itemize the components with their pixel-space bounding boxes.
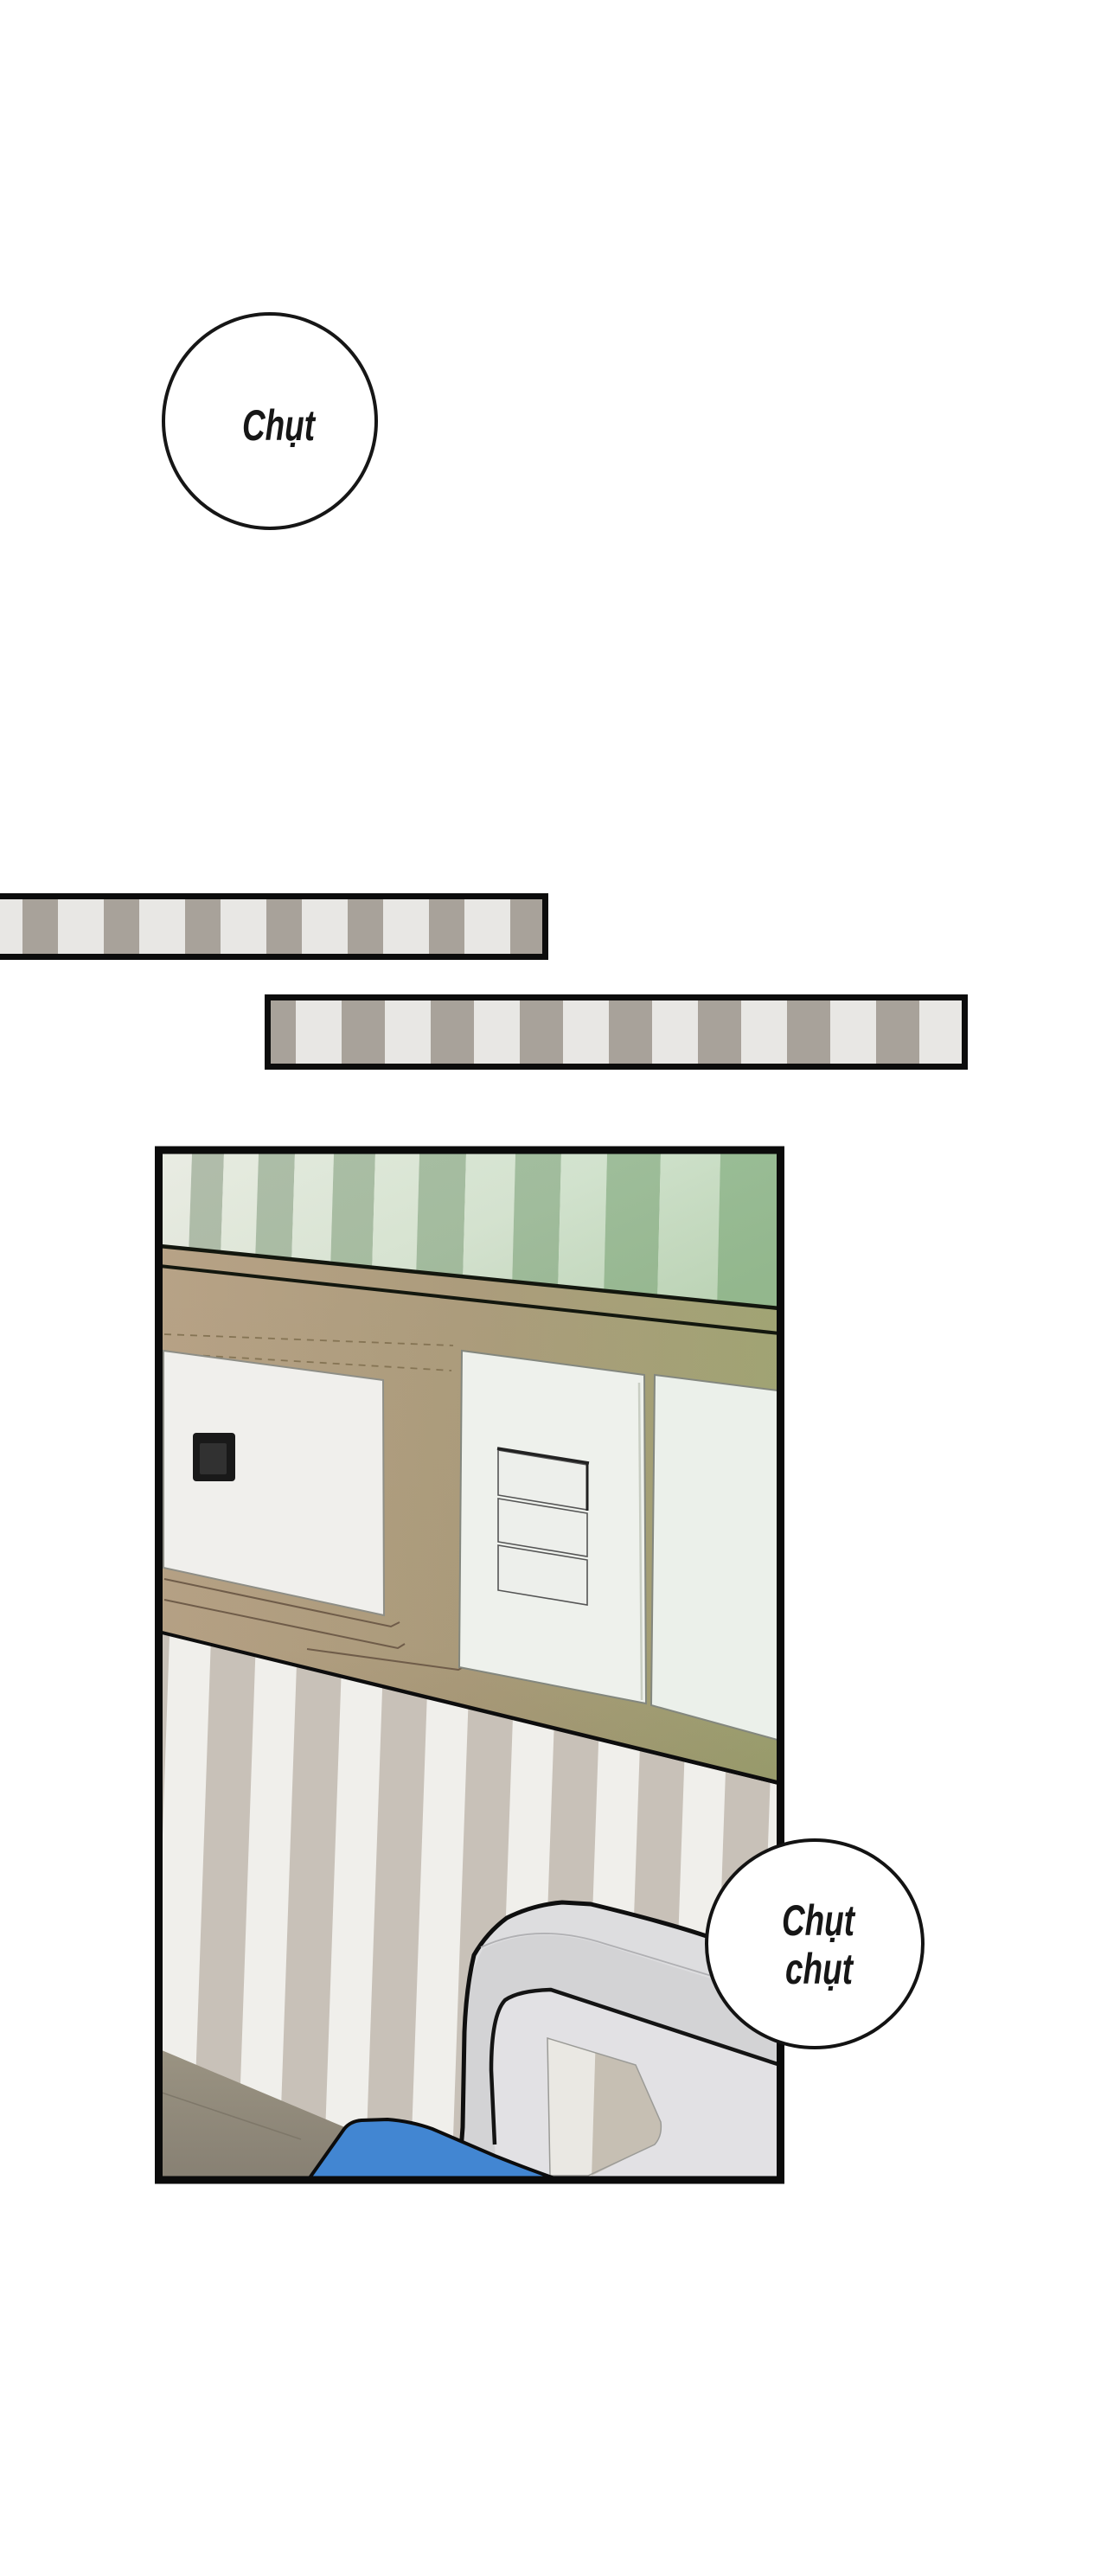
svg-text:Chụt: Chụt <box>242 401 317 450</box>
svg-text:chụt: chụt <box>785 1945 854 1993</box>
svg-text:Chụt: Chụt <box>782 1896 856 1945</box>
